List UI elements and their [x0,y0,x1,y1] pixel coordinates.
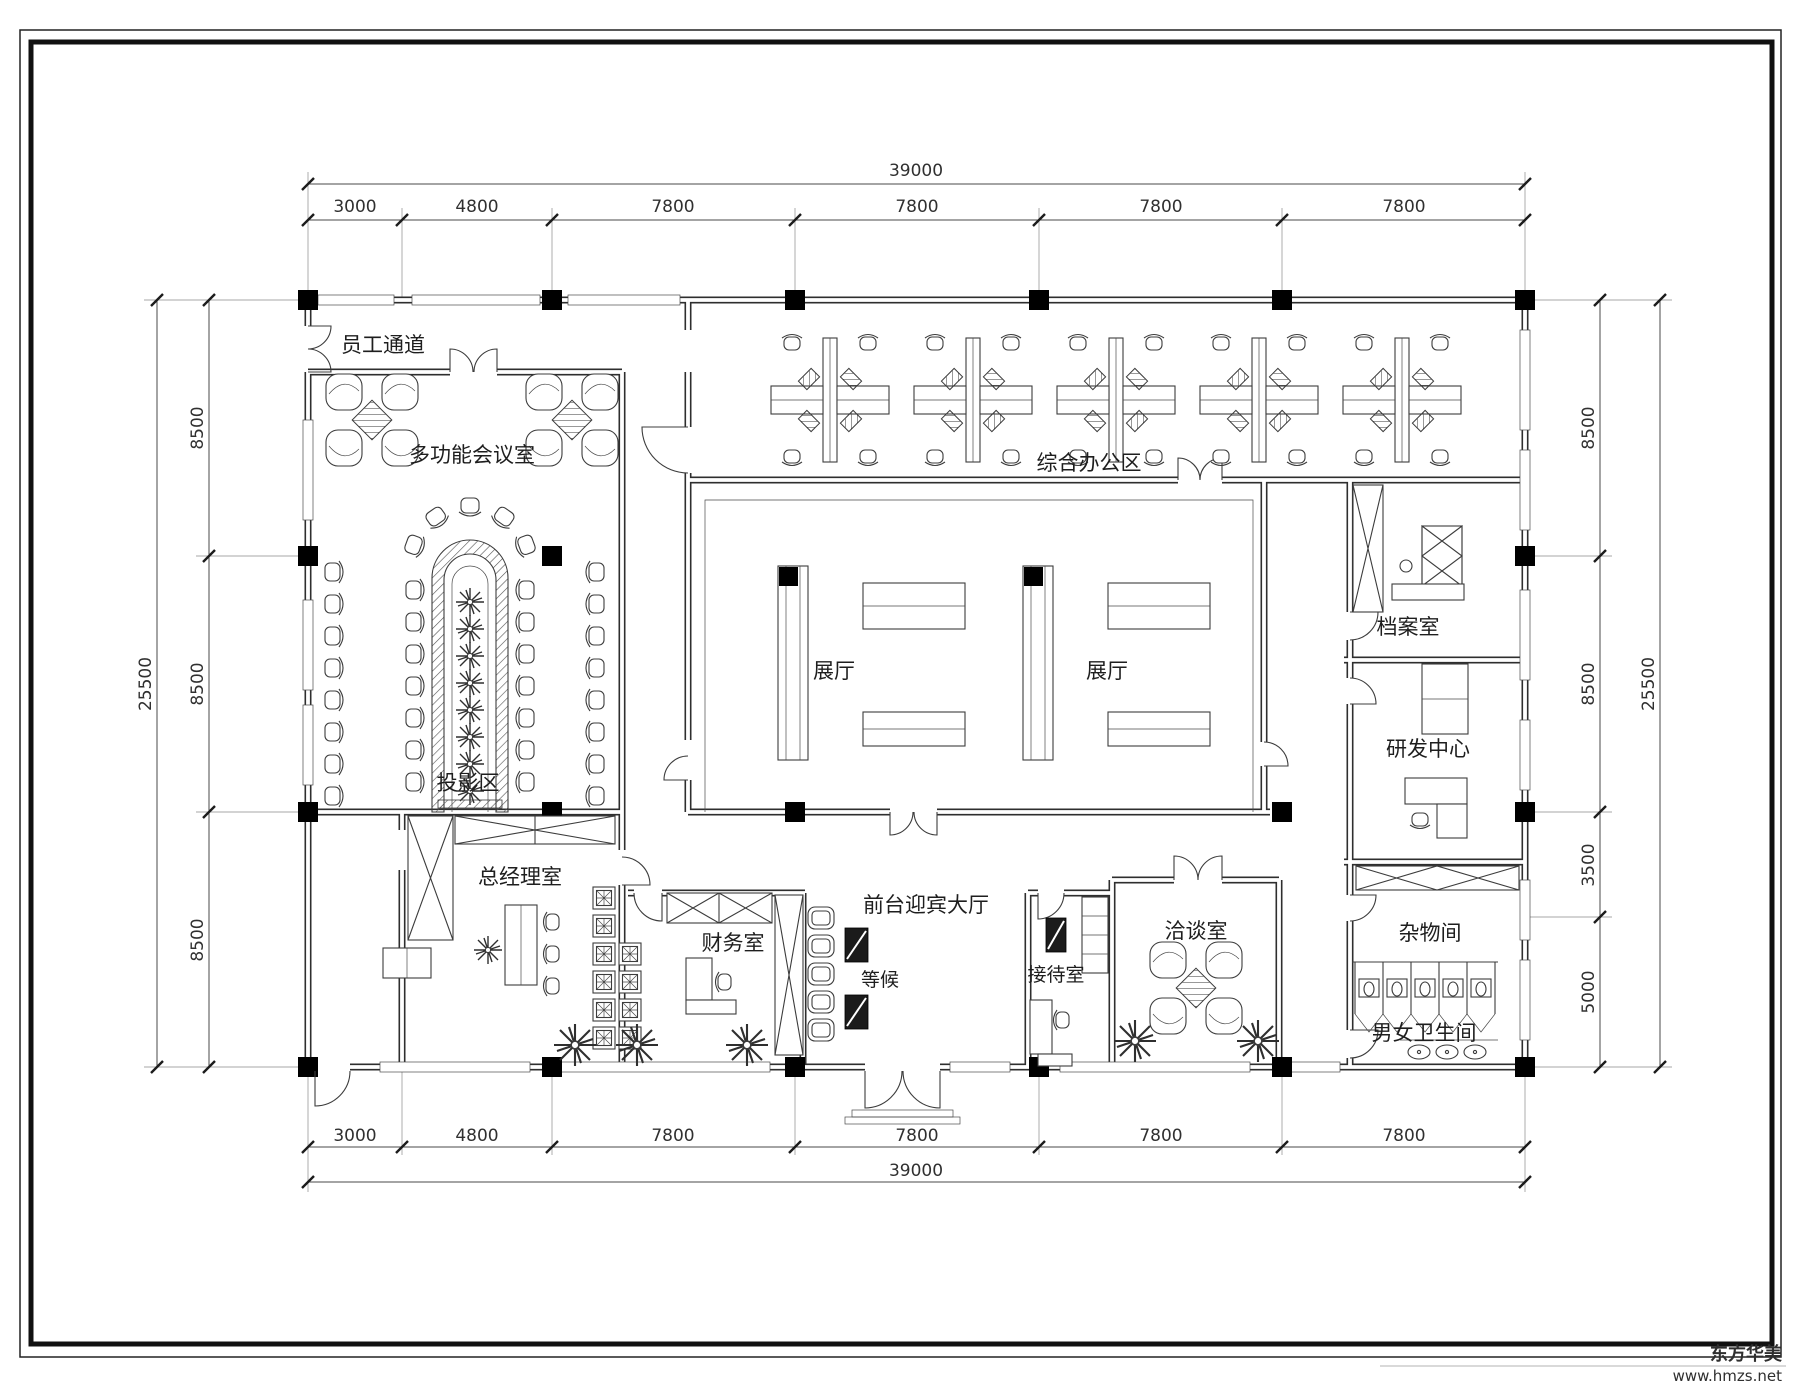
floor-plan-page: 39000 3000 4800 7800 7800 7800 7800 3000… [0,0,1801,1384]
meeting-room-furniture [325,374,618,812]
dim-right-seg-2: 8500 [1579,662,1599,705]
label-waiting-area: 等候 [861,969,899,991]
label-restrooms: 男女卫生间 [1372,1021,1477,1045]
dim-top-seg-1: 3000 [333,197,376,217]
label-rnd-center: 研发中心 [1386,737,1470,761]
dim-bottom-seg-5: 7800 [1139,1126,1182,1146]
dim-left-seg-3: 8500 [188,918,208,961]
dim-bottom-seg-3: 7800 [651,1126,694,1146]
label-reception-room: 接待室 [1027,964,1084,986]
finance-room-furniture [667,893,803,1055]
label-exhibition-left: 展厅 [813,659,855,683]
label-storage-room: 杂物间 [1399,921,1462,945]
dim-top-seg-6: 7800 [1382,197,1425,217]
dim-bottom-seg-2: 4800 [455,1126,498,1146]
dim-right-seg-4: 5000 [1579,970,1599,1013]
dim-left-seg-2: 8500 [188,662,208,705]
projection-screen [438,800,502,808]
dim-top-total: 39000 [889,161,943,181]
dim-right-total: 25500 [1639,657,1659,711]
office-workstation-clusters [771,335,1461,466]
label-projection-area: 投影区 [437,771,500,795]
watermark-website: www.hmzs.net [1673,1367,1783,1384]
dim-top-seg-4: 7800 [895,197,938,217]
sheet-border [20,30,1781,1357]
archive-room-furniture [1353,485,1464,612]
dim-top-seg-2: 4800 [455,197,498,217]
dim-right-seg-1: 8500 [1579,406,1599,449]
dim-left-total: 25500 [136,657,156,711]
rnd-center-furniture [1356,664,1519,890]
dim-bottom-seg-4: 7800 [895,1126,938,1146]
label-negotiation-room: 洽谈室 [1165,919,1228,943]
dim-right-seg-3: 3500 [1579,843,1599,886]
waiting-area-furniture [808,907,868,1041]
label-archive-room: 档案室 [1377,615,1440,639]
dim-top-seg-3: 7800 [651,197,694,217]
dim-bottom-total: 39000 [889,1161,943,1181]
floor-plan-svg: 39000 3000 4800 7800 7800 7800 7800 3000… [0,0,1801,1384]
label-gm-office: 总经理室 [478,865,562,889]
label-finance-room: 财务室 [702,931,765,955]
label-staff-corridor: 员工通道 [341,333,425,357]
label-reception-hall: 前台迎宾大厅 [863,893,989,917]
dim-top-seg-5: 7800 [1139,197,1182,217]
gm-office-furniture [383,816,615,996]
negotiation-room-furniture [1150,942,1242,1034]
watermark-brand: 东方华美 [1710,1343,1782,1365]
label-exhibition-right: 展厅 [1086,659,1128,683]
dim-bottom-seg-1: 3000 [333,1126,376,1146]
label-office-area: 综合办公区 [1037,451,1142,475]
decorative-tile-column [593,887,641,1049]
dim-left-seg-1: 8500 [188,406,208,449]
watermark: 东方华美 www.hmzs.net [1380,1343,1786,1384]
dim-bottom-seg-6: 7800 [1382,1126,1425,1146]
label-meeting-room: 多功能会议室 [409,443,535,467]
